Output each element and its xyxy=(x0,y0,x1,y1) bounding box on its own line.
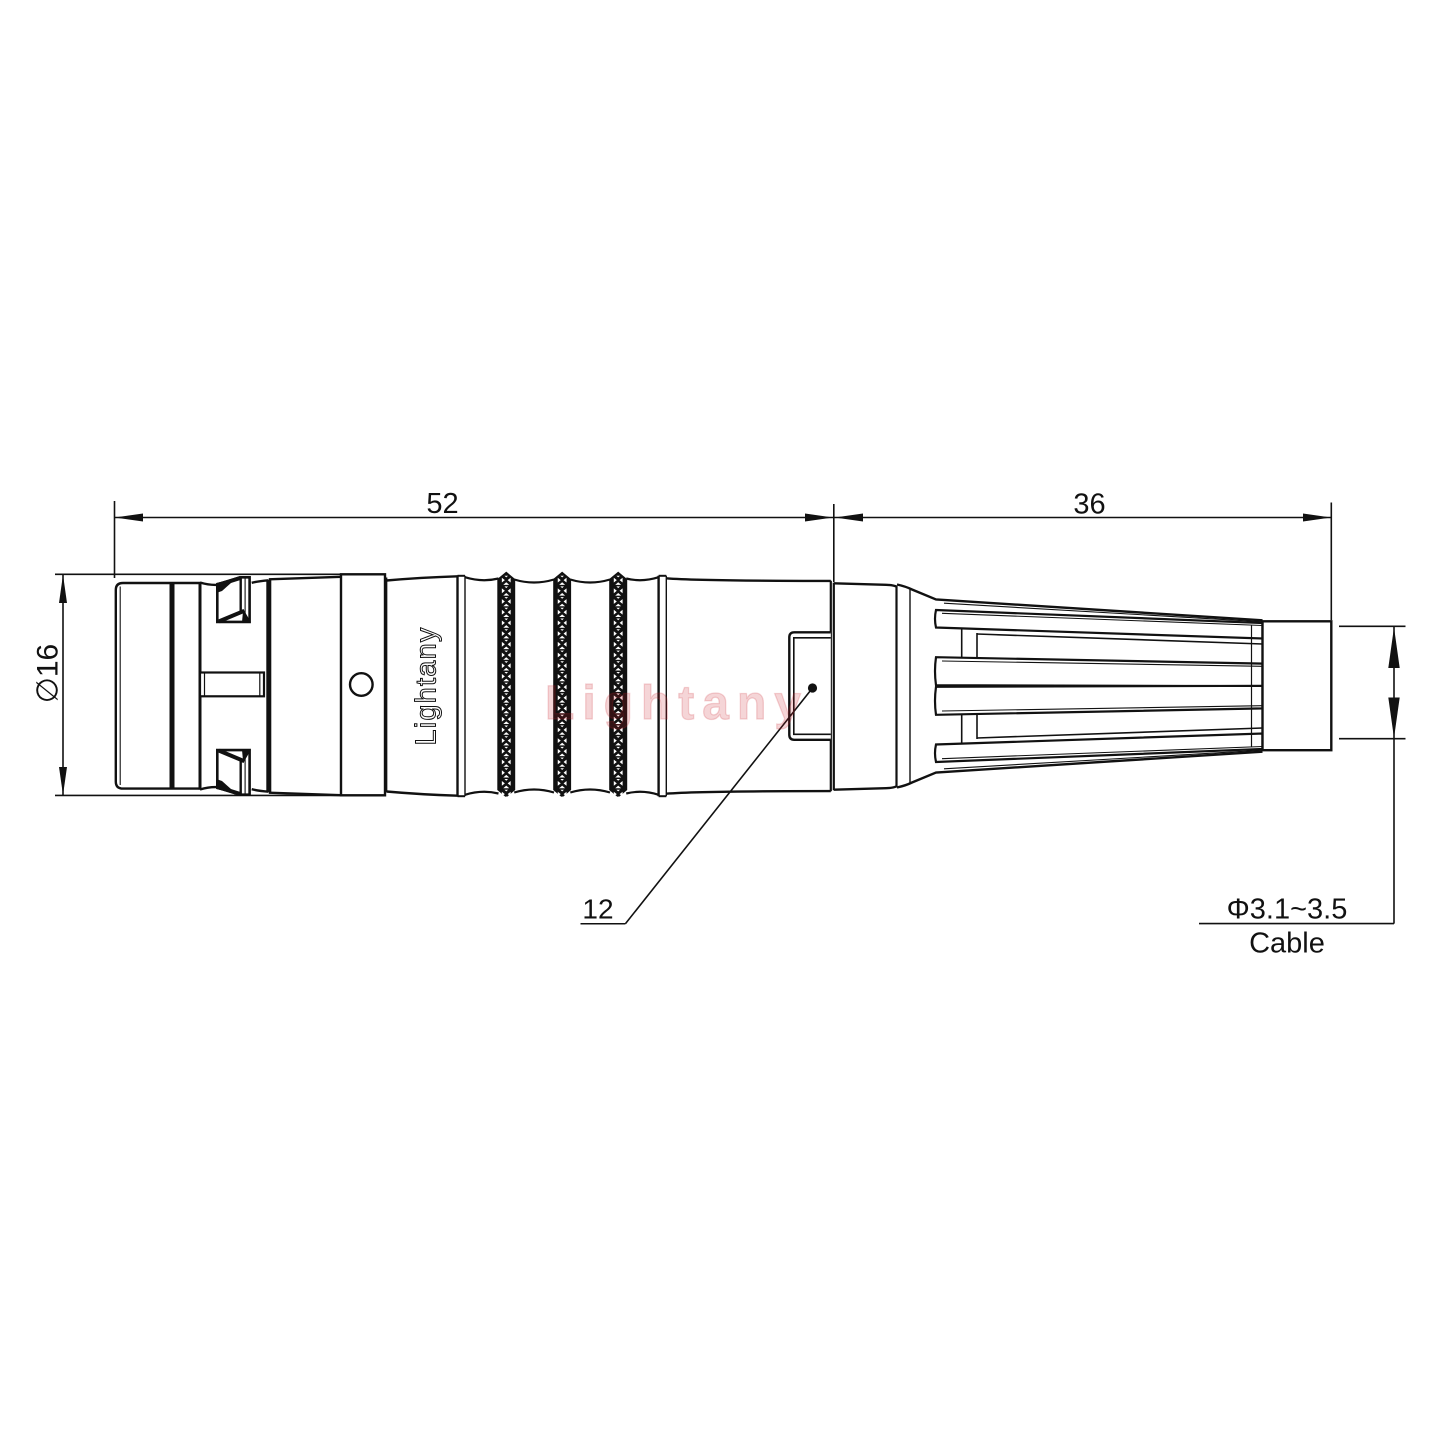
svg-text:∅16: ∅16 xyxy=(32,644,65,704)
svg-text:Φ3.1~3.5: Φ3.1~3.5 xyxy=(1227,894,1348,926)
svg-text:Cable: Cable xyxy=(1249,928,1325,960)
svg-text:Lightany: Lightany xyxy=(411,626,443,745)
svg-text:36: 36 xyxy=(1073,489,1105,521)
svg-text:52: 52 xyxy=(426,488,458,520)
svg-text:12: 12 xyxy=(582,894,613,925)
